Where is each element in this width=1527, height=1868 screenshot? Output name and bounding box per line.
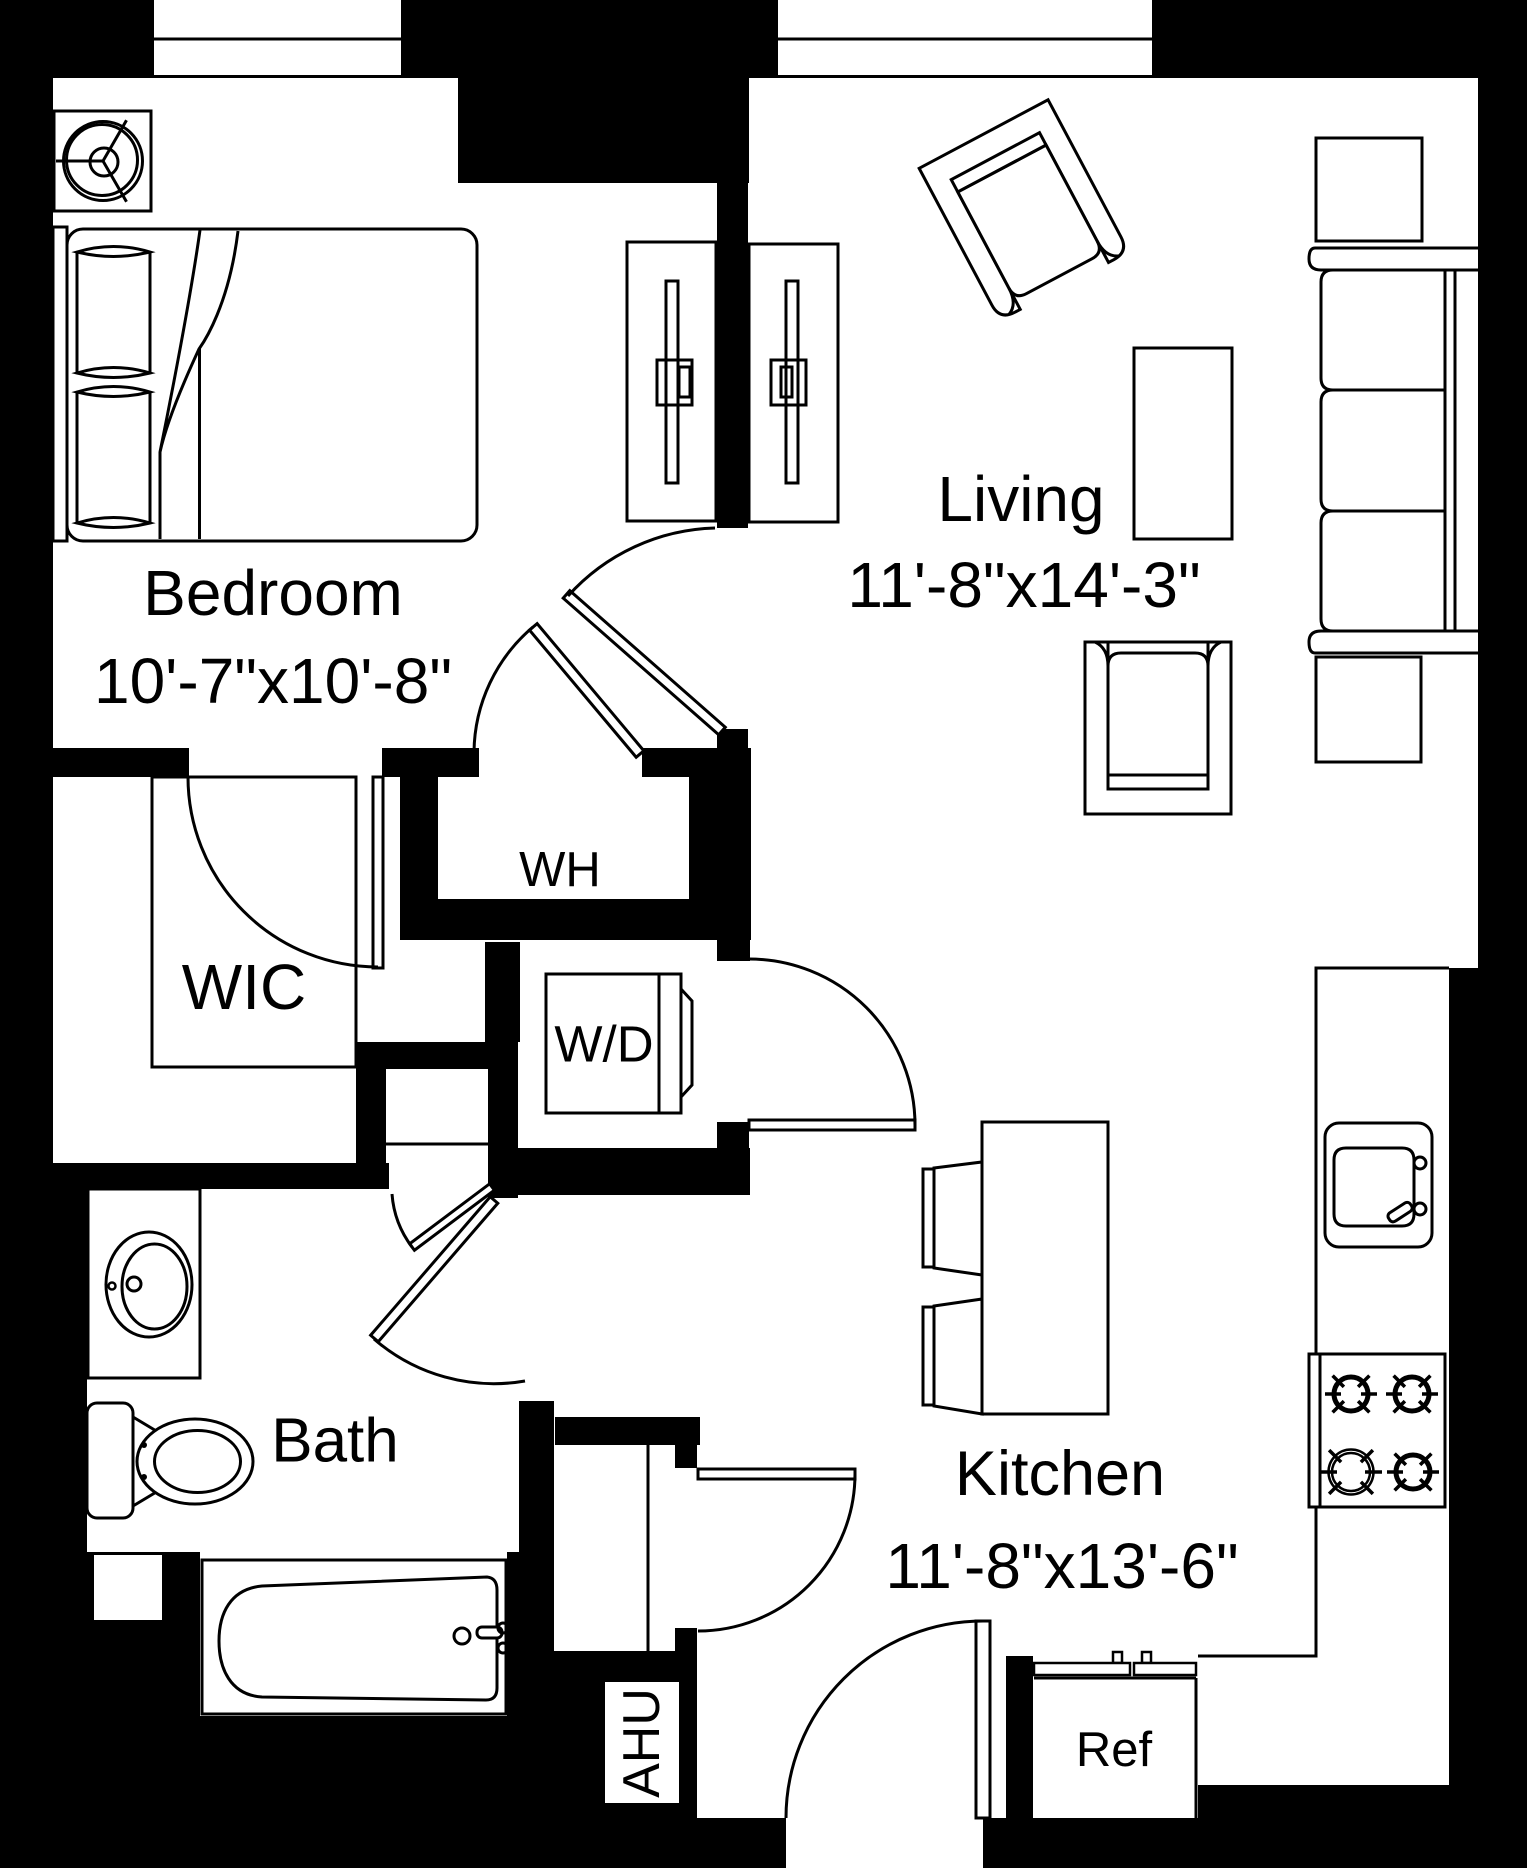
- svg-text:Bedroom: Bedroom: [143, 557, 403, 629]
- svg-text:WIC: WIC: [182, 951, 306, 1023]
- svg-text:Kitchen: Kitchen: [955, 1439, 1165, 1509]
- svg-text:W/D: W/D: [554, 1016, 653, 1073]
- svg-text:10'-7"x10'-8": 10'-7"x10'-8": [94, 645, 452, 717]
- svg-text:Ref: Ref: [1076, 1723, 1153, 1777]
- svg-text:AHU: AHU: [613, 1688, 671, 1798]
- svg-text:Living: Living: [937, 463, 1104, 535]
- svg-text:11'-8"x13'-6": 11'-8"x13'-6": [885, 1530, 1238, 1602]
- svg-text:WH: WH: [519, 843, 601, 897]
- svg-text:11'-8"x14'-3": 11'-8"x14'-3": [847, 549, 1200, 621]
- svg-text:Bath: Bath: [271, 1407, 399, 1476]
